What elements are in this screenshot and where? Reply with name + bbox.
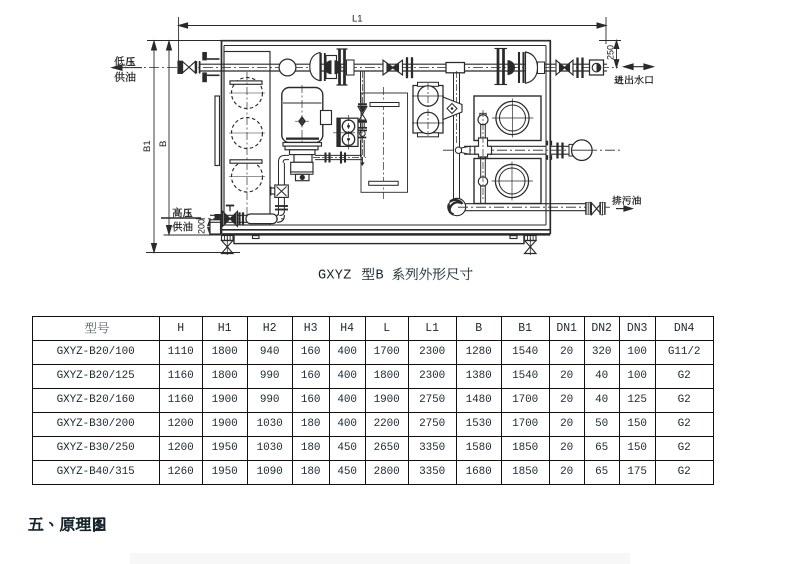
svg-text:B: B <box>376 269 384 284</box>
svg-text:L1: L1 <box>352 14 363 25</box>
svg-text:B: B <box>158 141 169 147</box>
svg-text:GXYZ: GXYZ <box>318 269 352 284</box>
svg-text:200: 200 <box>197 219 207 234</box>
svg-text:250: 250 <box>606 45 616 60</box>
svg-text:B1: B1 <box>142 140 153 152</box>
